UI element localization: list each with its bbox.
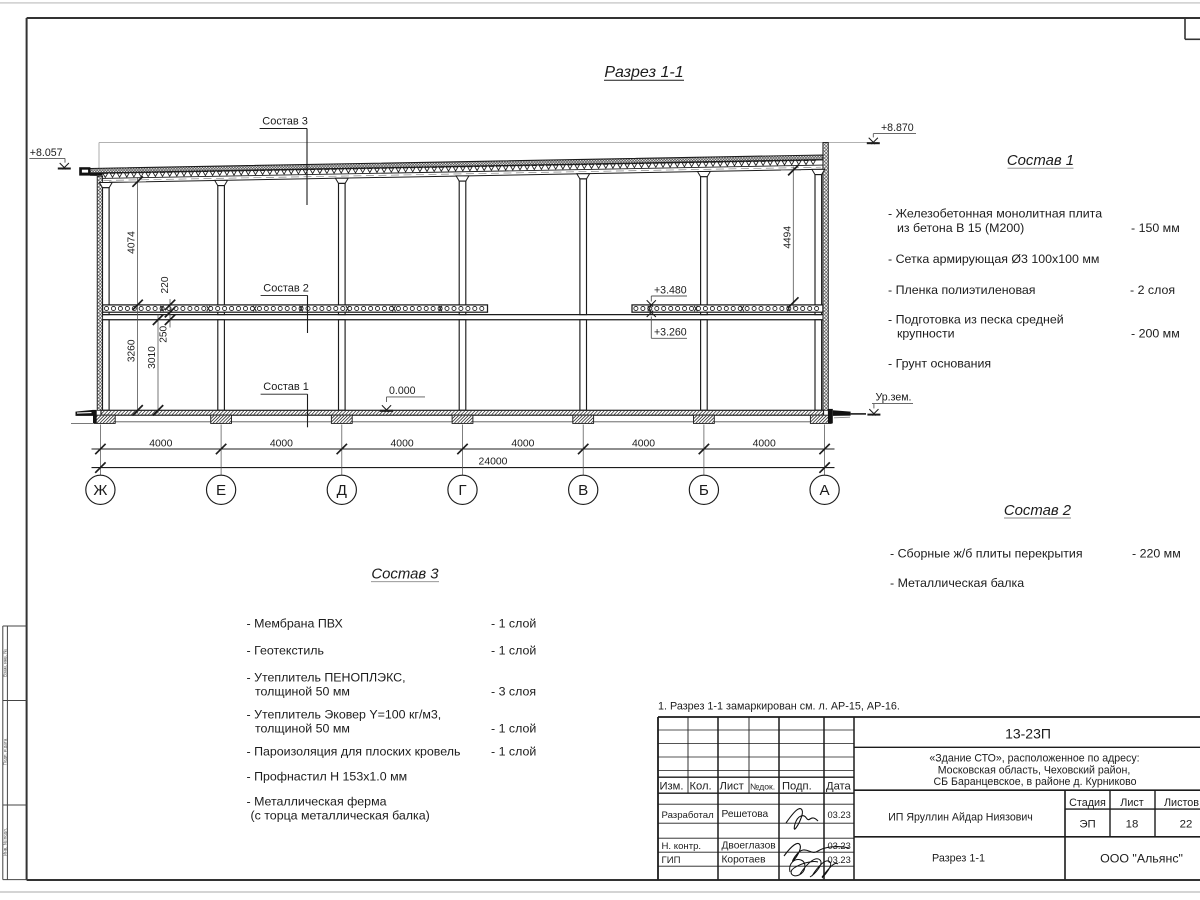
svg-text:+8.057: +8.057 bbox=[30, 147, 63, 159]
svg-text:03.23: 03.23 bbox=[828, 810, 851, 820]
svg-text:4000: 4000 bbox=[149, 438, 172, 449]
svg-text:ГИП: ГИП bbox=[662, 855, 681, 866]
svg-text:Взам. инв. №: Взам. инв. № bbox=[2, 649, 7, 677]
svg-text:4000: 4000 bbox=[632, 438, 655, 449]
svg-text:0.000: 0.000 bbox=[389, 385, 416, 397]
svg-text:Лист: Лист bbox=[720, 781, 744, 793]
svg-text:Состав 1: Состав 1 bbox=[263, 381, 309, 393]
svg-text:Г: Г bbox=[458, 482, 466, 499]
svg-text:4000: 4000 bbox=[511, 438, 534, 449]
svg-text:А: А bbox=[820, 482, 831, 499]
svg-text:1. Разрез 1-1 замаркирован см.: 1. Разрез 1-1 замаркирован см. л. АР-15,… bbox=[658, 701, 900, 713]
svg-text:+3.260: +3.260 bbox=[654, 327, 687, 339]
svg-text:крупности: крупности bbox=[897, 326, 955, 340]
svg-text:(с торца металлическая балка): (с торца металлическая балка) bbox=[251, 809, 430, 823]
svg-text:Двоеглазов: Двоеглазов bbox=[722, 841, 776, 852]
svg-text:- Сборные ж/б плиты перекрытия: - Сборные ж/б плиты перекрытия bbox=[890, 547, 1083, 561]
svg-text:220: 220 bbox=[160, 276, 171, 293]
svg-text:Стадия: Стадия bbox=[1069, 797, 1106, 809]
svg-text:«Здание СТО», расположенное по: «Здание СТО», расположенное по адресу: bbox=[929, 753, 1139, 765]
svg-text:Разрез 1-1: Разрез 1-1 bbox=[932, 853, 985, 865]
svg-text:Состав 1: Состав 1 bbox=[1007, 153, 1074, 169]
svg-text:4000: 4000 bbox=[753, 438, 776, 449]
svg-text:- 1 слой: - 1 слой bbox=[491, 644, 536, 658]
svg-text:Разрез 1-1: Разрез 1-1 bbox=[604, 64, 683, 81]
svg-text:18: 18 bbox=[1126, 819, 1139, 831]
svg-text:250: 250 bbox=[158, 325, 169, 342]
svg-text:ИП Яруллин Айдар Ниязович: ИП Яруллин Айдар Ниязович bbox=[888, 812, 1033, 824]
svg-text:3010: 3010 bbox=[147, 346, 158, 369]
svg-text:- Геотекстиль: - Геотекстиль bbox=[247, 644, 324, 658]
svg-text:- 2 слоя: - 2 слоя bbox=[1130, 283, 1175, 297]
svg-text:Коротаев: Коротаев bbox=[722, 855, 766, 866]
svg-text:22: 22 bbox=[1180, 819, 1193, 831]
svg-text:- Пленка полиэтиленовая: - Пленка полиэтиленовая bbox=[888, 283, 1036, 297]
svg-text:- Сетка армирующая Ø3 100x100: - Сетка армирующая Ø3 100x100 мм bbox=[888, 252, 1099, 266]
svg-text:- Утеплитель ПЕНОПЛЭКС,: - Утеплитель ПЕНОПЛЭКС, bbox=[247, 671, 406, 685]
svg-text:Дата: Дата bbox=[826, 781, 852, 793]
svg-text:Подп. и дата: Подп. и дата bbox=[2, 738, 7, 765]
svg-text:ООО "Альянс": ООО "Альянс" bbox=[1100, 852, 1183, 866]
svg-text:Б: Б bbox=[699, 482, 709, 499]
svg-text:- 150 мм: - 150 мм bbox=[1131, 221, 1180, 235]
svg-text:Состав 2: Состав 2 bbox=[1004, 503, 1072, 519]
svg-text:Изм.: Изм. bbox=[660, 781, 684, 793]
svg-text:4000: 4000 bbox=[270, 438, 293, 449]
svg-text:- 1 слой: - 1 слой bbox=[491, 745, 536, 759]
svg-text:Ж: Ж bbox=[93, 482, 107, 499]
svg-text:Лист: Лист bbox=[1120, 797, 1144, 809]
svg-text:24000: 24000 bbox=[479, 457, 508, 468]
svg-text:СБ Баранцевское, в районе д. К: СБ Баранцевское, в районе д. Курниково bbox=[933, 776, 1136, 788]
svg-text:№док.: №док. bbox=[750, 781, 775, 791]
svg-text:03.23: 03.23 bbox=[828, 841, 851, 851]
svg-text:- Металлическая ферма: - Металлическая ферма bbox=[247, 795, 387, 809]
svg-text:Листов: Листов bbox=[1164, 797, 1199, 809]
svg-text:4000: 4000 bbox=[391, 438, 414, 449]
svg-text:Е: Е bbox=[216, 482, 226, 499]
svg-text:- Утеплитель Эковер Y=100 кг/м: - Утеплитель Эковер Y=100 кг/м3, bbox=[247, 708, 442, 722]
svg-text:+3.480: +3.480 bbox=[654, 284, 687, 296]
svg-text:- 1 слой: - 1 слой bbox=[491, 722, 536, 736]
svg-text:- Грунт основания: - Грунт основания bbox=[888, 357, 991, 371]
svg-text:Состав 3: Состав 3 bbox=[262, 115, 308, 127]
svg-text:из бетона В 15 (М200): из бетона В 15 (М200) bbox=[897, 221, 1024, 235]
svg-text:- Металлическая балка: - Металлическая балка bbox=[890, 576, 1024, 590]
svg-text:- 3 слоя: - 3 слоя bbox=[491, 685, 536, 699]
svg-text:Кол.: Кол. bbox=[690, 781, 712, 793]
svg-text:ЭП: ЭП bbox=[1079, 819, 1095, 831]
svg-text:- Подготовка из песка средней: - Подготовка из песка средней bbox=[888, 313, 1064, 327]
svg-text:Решетова: Решетова bbox=[722, 809, 769, 820]
svg-text:+8.870: +8.870 bbox=[881, 122, 914, 134]
svg-text:- Профнастил Н 153x1.0 мм: - Профнастил Н 153x1.0 мм bbox=[247, 770, 408, 784]
svg-text:Подп.: Подп. bbox=[782, 781, 812, 793]
svg-text:Состав 3: Состав 3 bbox=[371, 567, 439, 583]
svg-text:4494: 4494 bbox=[782, 226, 793, 249]
svg-text:В: В bbox=[578, 482, 588, 499]
svg-text:толщиной 50 мм: толщиной 50 мм bbox=[255, 685, 350, 699]
svg-text:Разработал: Разработал bbox=[662, 810, 714, 821]
svg-text:- 200 мм: - 200 мм bbox=[1131, 326, 1180, 340]
svg-text:- 220 мм: - 220 мм bbox=[1132, 547, 1181, 561]
svg-text:Состав 2: Состав 2 bbox=[263, 283, 309, 295]
svg-text:Московская область, Чеховский: Московская область, Чеховский район, bbox=[938, 765, 1131, 777]
svg-text:Ур.зем.: Ур.зем. bbox=[876, 391, 912, 403]
svg-text:Н. контр.: Н. контр. bbox=[662, 841, 702, 852]
svg-text:- 1 слой: - 1 слой bbox=[491, 617, 536, 631]
svg-text:4074: 4074 bbox=[126, 231, 137, 254]
svg-text:толщиной 50 мм: толщиной 50 мм bbox=[255, 722, 350, 736]
svg-text:- Мембрана ПВХ: - Мембрана ПВХ bbox=[247, 617, 343, 631]
svg-text:13-23П: 13-23П bbox=[1005, 726, 1051, 742]
svg-text:Инв. № подл.: Инв. № подл. bbox=[2, 828, 7, 856]
svg-text:Д: Д bbox=[337, 482, 347, 499]
svg-text:3260: 3260 bbox=[127, 339, 138, 362]
svg-text:- Пароизоляция для плоских кро: - Пароизоляция для плоских кровель bbox=[247, 745, 461, 759]
svg-text:- Железобетонная монолитная п: - Железобетонная монолитная плита bbox=[888, 207, 1102, 221]
